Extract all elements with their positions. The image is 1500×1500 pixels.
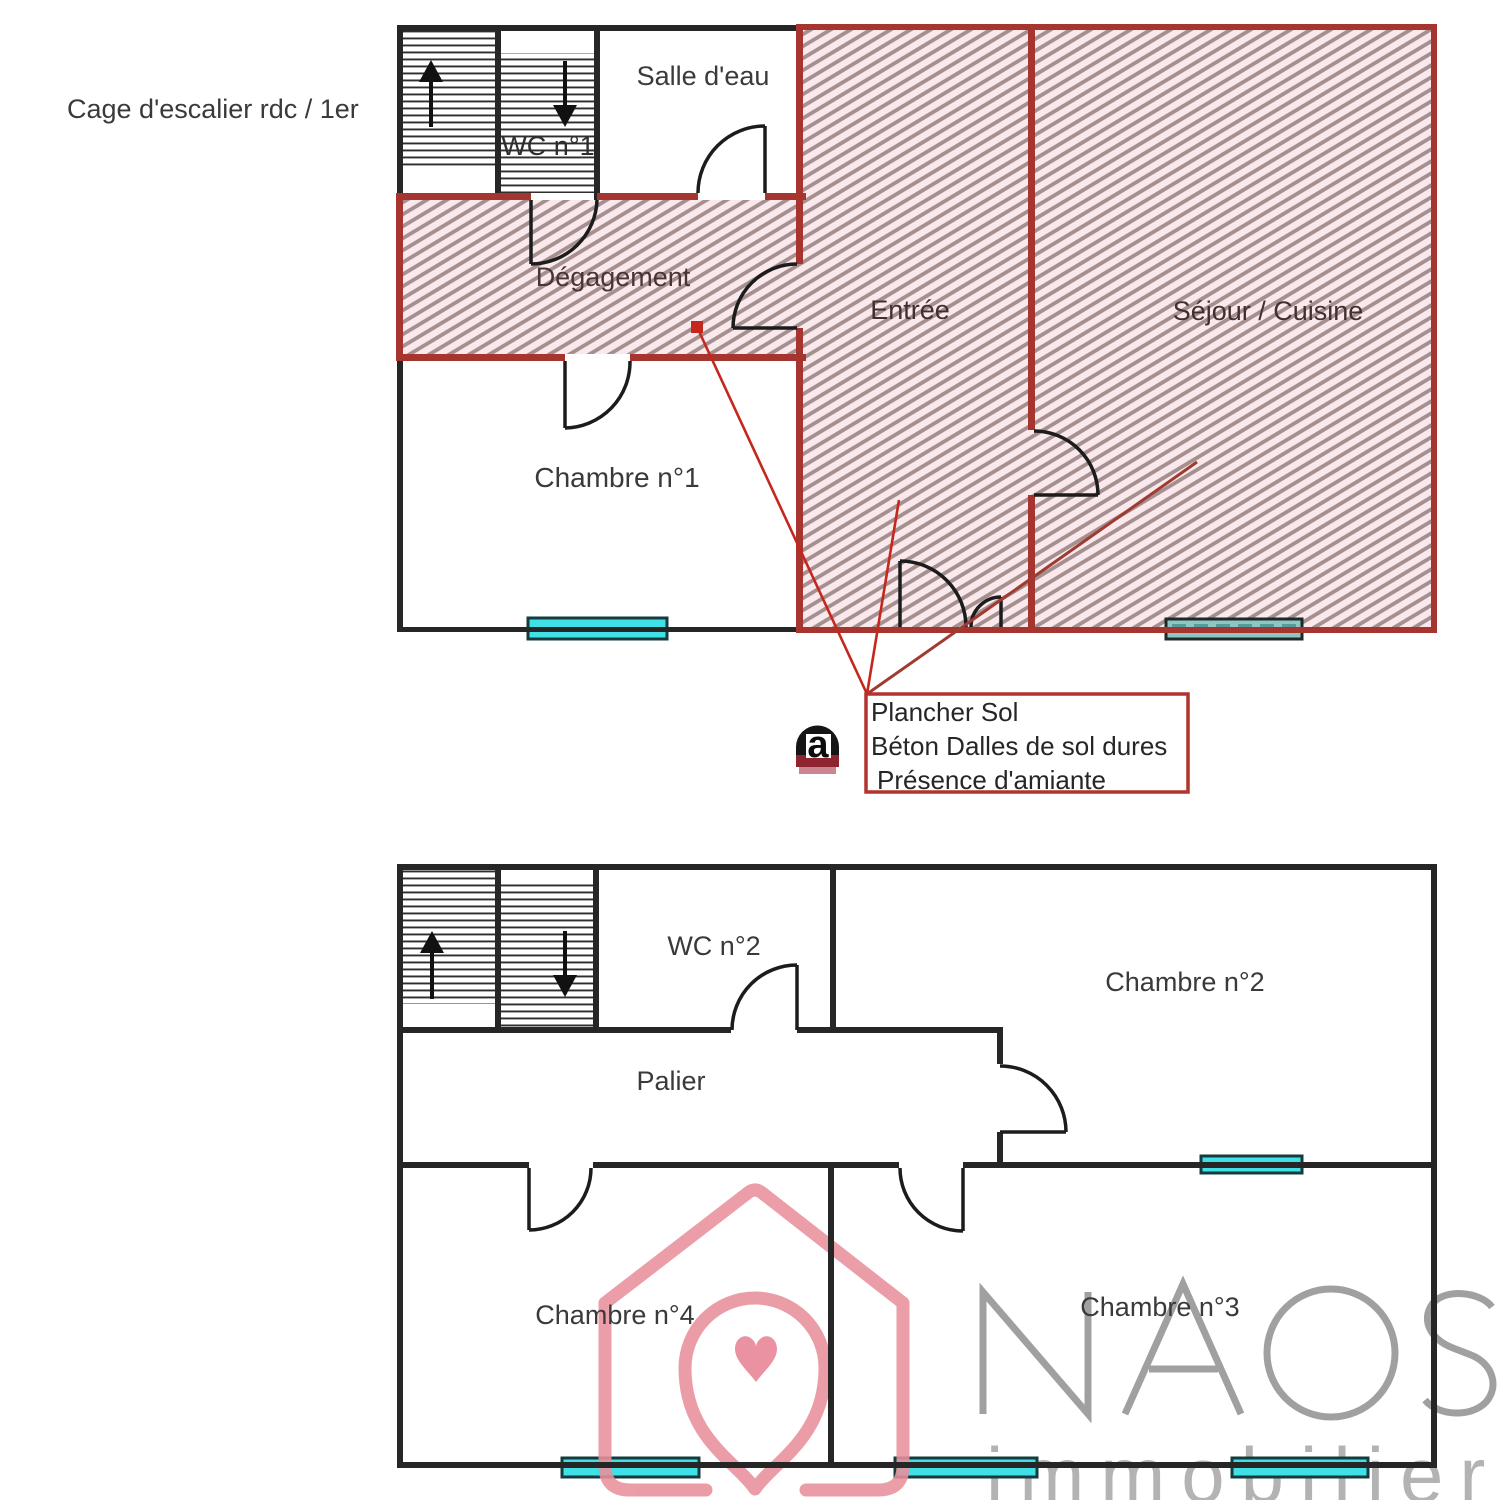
svg-text:Chambre n°1: Chambre n°1 <box>534 462 699 493</box>
svg-text:Chambre n°2: Chambre n°2 <box>1105 967 1264 997</box>
svg-text:Plancher Sol: Plancher Sol <box>871 697 1018 727</box>
svg-text:a: a <box>807 724 829 766</box>
svg-text:Présence d'amiante: Présence d'amiante <box>877 765 1106 795</box>
svg-text:Béton Dalles de sol dures: Béton Dalles de sol dures <box>871 731 1167 761</box>
svg-text:Chambre n°3: Chambre n°3 <box>1080 1292 1239 1322</box>
svg-text:Palier: Palier <box>636 1066 705 1096</box>
svg-text:Dégagement: Dégagement <box>536 262 691 292</box>
svg-text:Entrée: Entrée <box>870 295 950 325</box>
svg-text:Séjour / Cuisine: Séjour / Cuisine <box>1173 296 1364 326</box>
svg-text:WC n°1: WC n°1 <box>501 131 594 161</box>
svg-text:Salle d'eau: Salle d'eau <box>637 61 770 91</box>
svg-text:Cage d'escalier rdc / 1er: Cage d'escalier rdc / 1er <box>67 94 359 124</box>
svg-text:WC n°2: WC n°2 <box>667 931 760 961</box>
svg-text:Chambre n°4: Chambre n°4 <box>535 1300 694 1330</box>
